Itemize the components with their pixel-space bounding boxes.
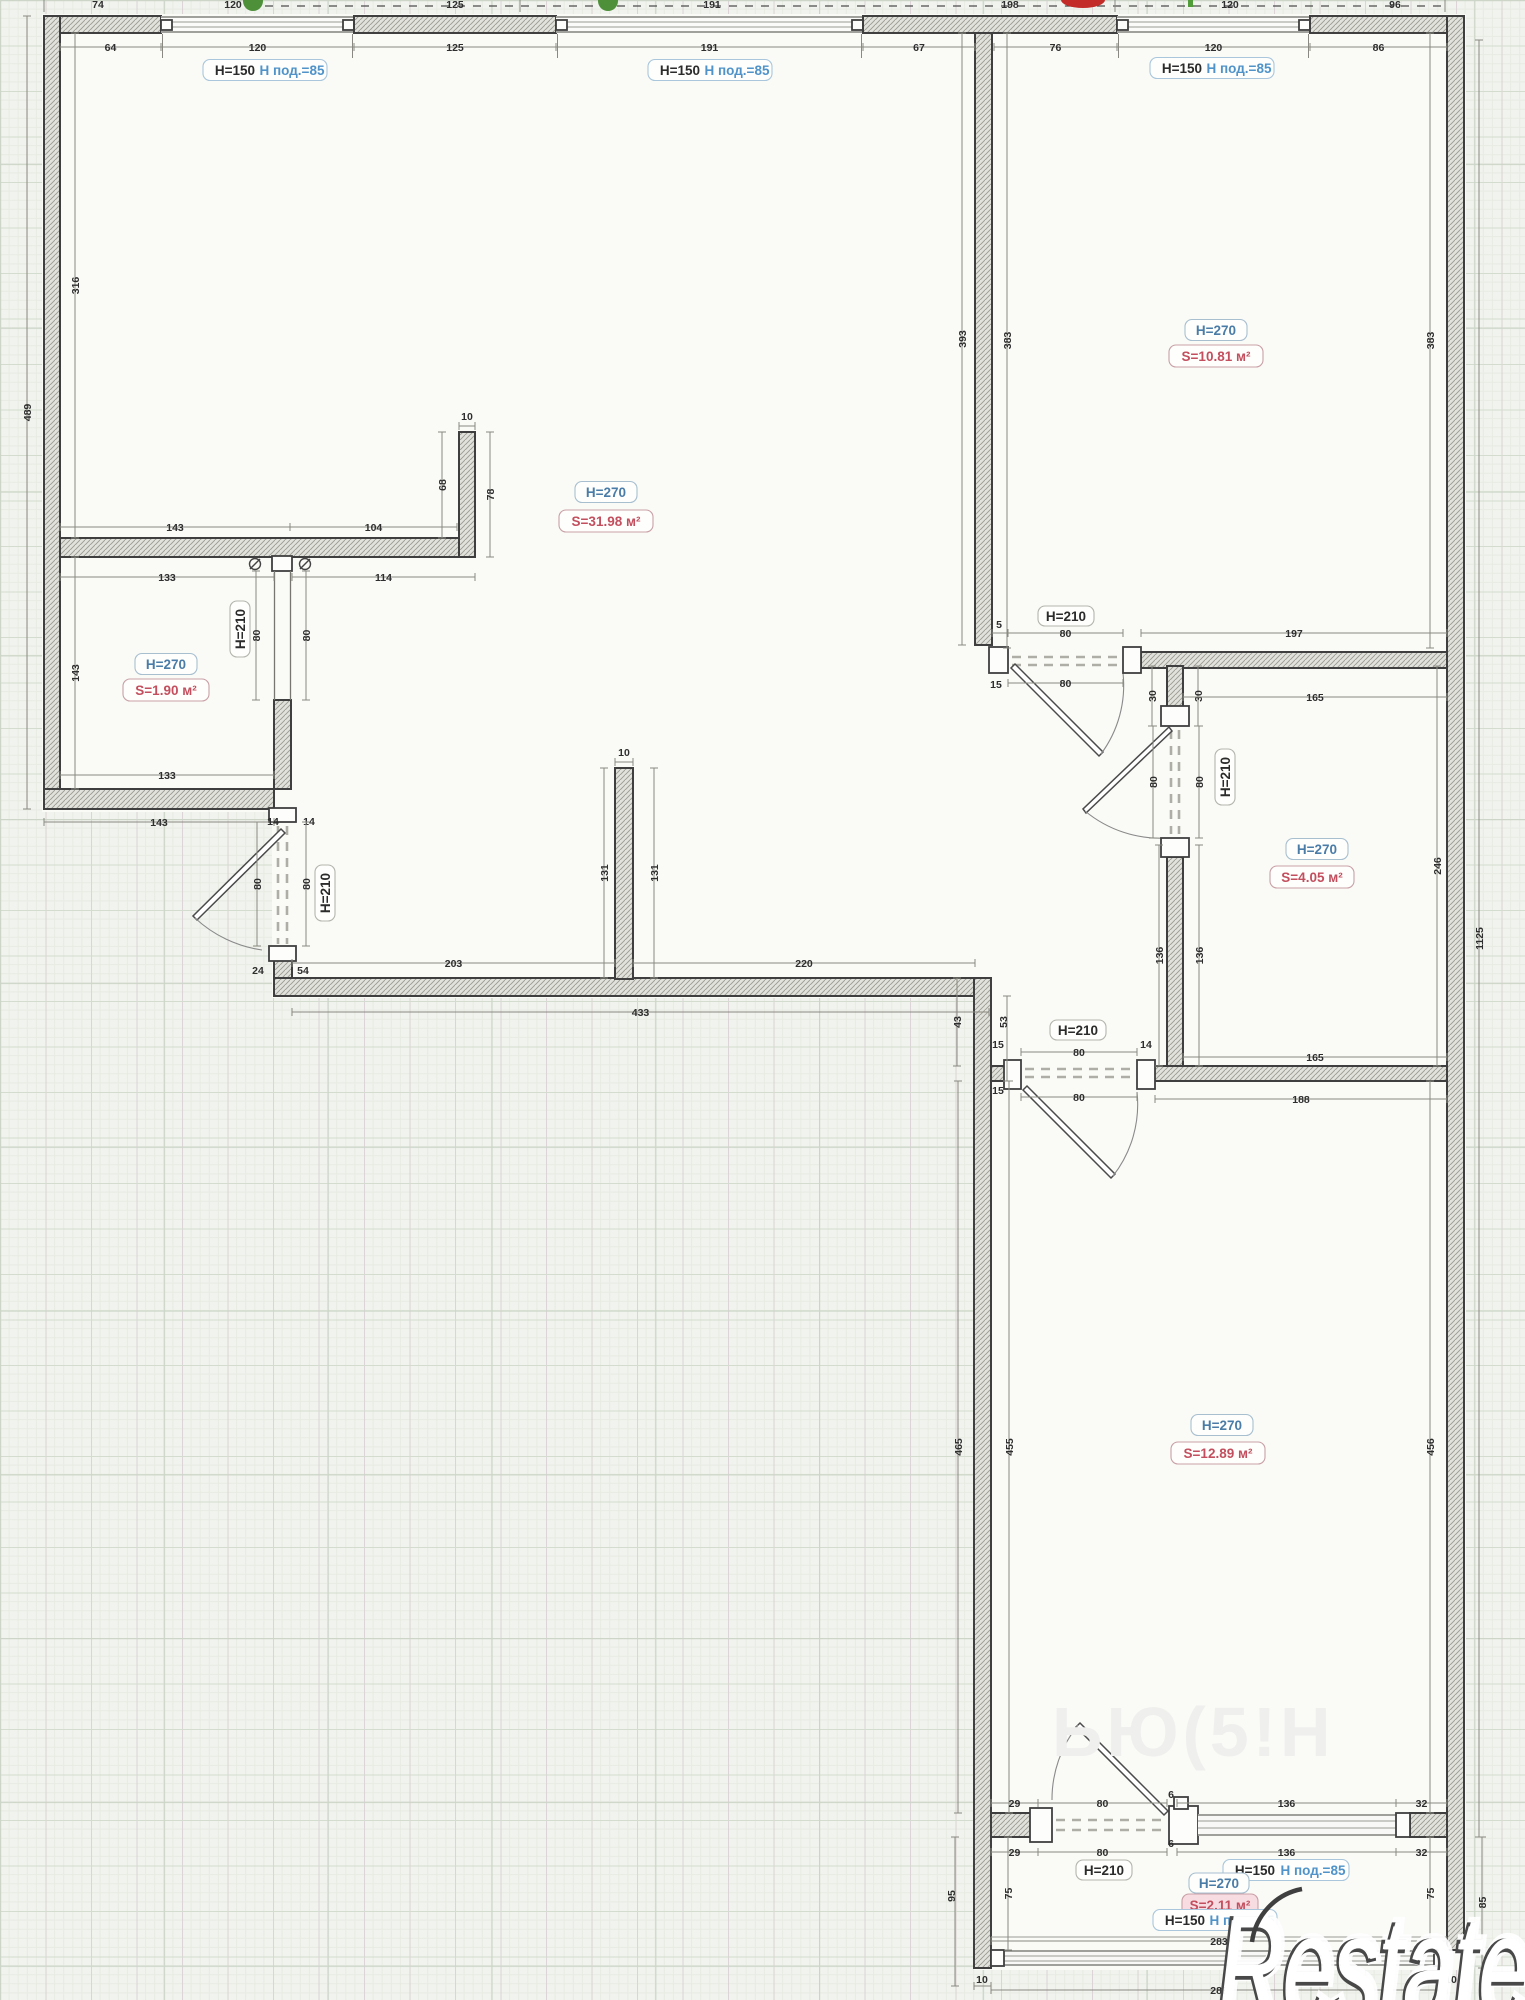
svg-text:165: 165: [1306, 1052, 1324, 1064]
svg-text:H под.=85: H под.=85: [705, 63, 770, 78]
svg-text:H=210: H=210: [1084, 1863, 1124, 1878]
svg-text:96: 96: [1389, 0, 1401, 11]
svg-text:43: 43: [952, 1016, 964, 1028]
svg-text:76: 76: [1050, 42, 1062, 54]
svg-text:67: 67: [913, 42, 925, 54]
svg-text:120: 120: [1205, 42, 1223, 54]
svg-text:80: 80: [1073, 1092, 1085, 1104]
svg-text:433: 433: [632, 1007, 650, 1019]
svg-text:80: 80: [1060, 628, 1072, 640]
svg-text:H под.=85: H под.=85: [1281, 1863, 1346, 1878]
svg-text:74: 74: [92, 0, 104, 11]
svg-text:136: 136: [1278, 1847, 1296, 1859]
svg-text:191: 191: [701, 42, 719, 54]
svg-text:136: 136: [1154, 947, 1166, 965]
svg-text:H=210: H=210: [1058, 1023, 1098, 1038]
svg-text:489: 489: [22, 404, 34, 422]
svg-text:Restate: Restate: [1219, 1884, 1525, 2000]
svg-text:80: 80: [301, 878, 313, 890]
svg-text:455: 455: [1004, 1438, 1016, 1456]
svg-text:H=210: H=210: [1046, 609, 1086, 624]
svg-text:383: 383: [1002, 332, 1014, 350]
svg-text:29: 29: [1009, 1847, 1021, 1859]
svg-text:32: 32: [1416, 1847, 1428, 1859]
svg-text:H=210: H=210: [318, 873, 333, 913]
svg-text:10: 10: [461, 411, 473, 423]
svg-text:136: 136: [1278, 1798, 1296, 1810]
svg-text:316: 316: [70, 277, 82, 295]
svg-text:136: 136: [1194, 947, 1206, 965]
svg-text:203: 203: [445, 958, 463, 970]
svg-text:H=270: H=270: [586, 485, 626, 500]
svg-text:H=270: H=270: [1202, 1418, 1242, 1433]
svg-text:165: 165: [1306, 692, 1324, 704]
svg-text:125: 125: [446, 42, 464, 54]
svg-text:80: 80: [1097, 1847, 1109, 1859]
svg-text:S=1.90 м²: S=1.90 м²: [135, 683, 197, 698]
svg-text:80: 80: [1060, 678, 1072, 690]
svg-text:465: 465: [953, 1438, 965, 1456]
svg-text:6: 6: [1168, 1838, 1174, 1850]
svg-text:393: 393: [957, 330, 969, 348]
svg-text:131: 131: [599, 864, 611, 882]
svg-text:14: 14: [267, 816, 279, 828]
svg-text:188: 188: [1292, 1094, 1310, 1106]
svg-text:68: 68: [437, 479, 449, 491]
svg-text:86: 86: [1373, 42, 1385, 54]
svg-text:15: 15: [992, 1085, 1004, 1097]
svg-text:6: 6: [1168, 1789, 1174, 1801]
svg-text:125: 125: [446, 0, 464, 11]
svg-text:29: 29: [1009, 1798, 1021, 1810]
svg-text:80: 80: [301, 630, 313, 642]
svg-text:H=150: H=150: [660, 63, 700, 78]
svg-text:10: 10: [976, 1974, 988, 1986]
svg-text:78: 78: [485, 489, 497, 501]
svg-text:H под.=85: H под.=85: [1207, 61, 1272, 76]
svg-text:80: 80: [251, 630, 263, 642]
svg-text:80: 80: [252, 878, 264, 890]
svg-text:H=270: H=270: [146, 657, 186, 672]
svg-text:191: 191: [703, 0, 721, 11]
svg-text:H=210: H=210: [233, 609, 248, 649]
svg-text:143: 143: [166, 522, 184, 534]
svg-text:H под.=85: H под.=85: [260, 63, 325, 78]
svg-text:75: 75: [1003, 1888, 1015, 1900]
svg-text:120: 120: [1221, 0, 1239, 11]
svg-text:S=4.05 м²: S=4.05 м²: [1281, 870, 1343, 885]
svg-text:ЬЮ(5!Н: ЬЮ(5!Н: [1052, 1693, 1335, 1771]
svg-text:220: 220: [795, 958, 813, 970]
svg-text:95: 95: [946, 1890, 958, 1902]
svg-text:104: 104: [365, 522, 383, 534]
svg-text:133: 133: [158, 572, 176, 584]
svg-text:1125: 1125: [1474, 927, 1486, 950]
svg-text:H=210: H=210: [1218, 757, 1233, 797]
svg-text:H=150: H=150: [1162, 61, 1202, 76]
svg-text:80: 80: [1097, 1798, 1109, 1810]
svg-text:80: 80: [1073, 1047, 1085, 1059]
svg-text:383: 383: [1425, 332, 1437, 350]
svg-text:24: 24: [252, 965, 264, 977]
svg-text:H=270: H=270: [1297, 842, 1337, 857]
svg-text:80: 80: [1194, 776, 1206, 788]
svg-text:15: 15: [992, 1039, 1004, 1051]
svg-text:133: 133: [158, 770, 176, 782]
svg-text:246: 246: [1432, 857, 1444, 875]
svg-text:H=270: H=270: [1196, 323, 1236, 338]
svg-text:10: 10: [618, 747, 630, 759]
svg-text:143: 143: [70, 664, 82, 682]
svg-text:198: 198: [1001, 0, 1019, 11]
svg-text:80: 80: [1148, 776, 1160, 788]
svg-text:15: 15: [990, 679, 1002, 691]
svg-text:S=12.89 м²: S=12.89 м²: [1184, 1446, 1253, 1461]
svg-text:53: 53: [998, 1016, 1010, 1028]
svg-text:H=150: H=150: [215, 63, 255, 78]
svg-text:64: 64: [105, 42, 117, 54]
svg-text:131: 131: [649, 864, 661, 882]
svg-text:30: 30: [1147, 690, 1159, 702]
svg-text:120: 120: [224, 0, 242, 11]
svg-text:14: 14: [1140, 1039, 1152, 1051]
svg-text:197: 197: [1285, 628, 1303, 640]
svg-text:5: 5: [996, 619, 1002, 631]
svg-text:32: 32: [1416, 1798, 1428, 1810]
svg-text:114: 114: [375, 572, 392, 584]
svg-text:S=31.98 м²: S=31.98 м²: [572, 514, 641, 529]
svg-text:S=10.81 м²: S=10.81 м²: [1182, 349, 1251, 364]
svg-text:120: 120: [249, 42, 267, 54]
svg-text:54: 54: [297, 965, 309, 977]
svg-text:143: 143: [150, 817, 168, 829]
svg-text:H=150: H=150: [1165, 1913, 1205, 1928]
svg-text:456: 456: [1425, 1438, 1437, 1456]
svg-text:30: 30: [1193, 690, 1205, 702]
